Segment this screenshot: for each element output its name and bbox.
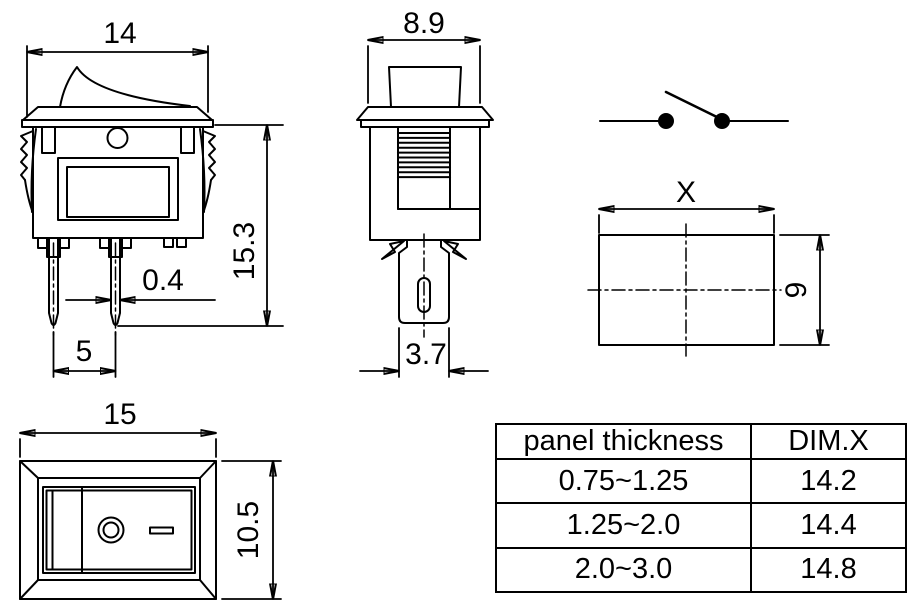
col-header-dim-x: DIM.X	[751, 424, 906, 459]
dim-cutout-height: 9	[780, 235, 829, 345]
body-ribs	[398, 133, 450, 177]
switch-body	[21, 127, 215, 257]
dim-front-width: 14	[27, 17, 208, 117]
pivot-hole	[108, 128, 128, 148]
dim-top-width: 15	[20, 398, 216, 457]
cutout-width-label: X	[676, 176, 696, 209]
rocker-knob	[389, 67, 461, 107]
on-symbol-icon	[150, 528, 173, 534]
mounting-flange	[22, 107, 213, 127]
panel-thickness-table: panel thickness DIM.X 0.75~1.25 14.2 1.2…	[495, 423, 905, 593]
thickness-range-cell: 2.0~3.0	[496, 548, 751, 592]
front-height-label: 15.3	[228, 222, 261, 280]
off-symbol-icon	[99, 518, 124, 543]
side-flange	[357, 107, 493, 127]
dim-top-height: 10.5	[222, 461, 281, 599]
thickness-range-cell: 0.75~1.25	[496, 459, 751, 503]
pin-thickness-label: 0.4	[142, 264, 184, 297]
top-view: 15 10.5	[20, 398, 281, 599]
datasheet-canvas: 14 15.3 0.4 5	[0, 0, 921, 616]
side-view: 8.9 3.7	[357, 7, 493, 377]
cutout-height-label: 9	[780, 282, 813, 299]
dim-pin-pitch: 5	[54, 332, 116, 377]
switch-lever-icon	[666, 92, 723, 120]
off-symbol-icon	[104, 523, 119, 538]
side-body	[370, 127, 480, 240]
table-header-row: panel thickness DIM.X	[496, 424, 906, 459]
front-width-label: 14	[103, 17, 136, 50]
table-row: 1.25~2.0 14.4	[496, 503, 906, 547]
rocker-actuator	[60, 67, 190, 107]
top-width-label: 15	[103, 398, 136, 431]
table-row: 2.0~3.0 14.8	[496, 548, 906, 592]
spst-circuit-symbol	[600, 92, 788, 129]
thickness-range-cell: 1.25~2.0	[496, 503, 751, 547]
contact-dot-icon	[658, 113, 674, 129]
dim-x-cell: 14.2	[751, 459, 906, 503]
table-row: 0.75~1.25 14.2	[496, 459, 906, 503]
dim-x-cell: 14.4	[751, 503, 906, 547]
dim-pin-thickness: 0.4	[66, 264, 215, 300]
top-height-label: 10.5	[232, 501, 265, 559]
panel-cutout-view: X 9	[588, 176, 829, 356]
pin-pitch-label: 5	[76, 335, 93, 368]
terminal-width-label: 3.7	[405, 338, 447, 371]
front-view: 14 15.3 0.4 5	[21, 17, 283, 377]
label-window	[58, 158, 178, 220]
col-header-panel-thickness: panel thickness	[496, 424, 751, 459]
rocker-well	[43, 487, 195, 573]
dim-x-cell: 14.8	[751, 548, 906, 592]
terminal-blade	[399, 234, 449, 337]
side-depth-label: 8.9	[403, 7, 445, 40]
dim-side-depth: 8.9	[368, 7, 480, 103]
